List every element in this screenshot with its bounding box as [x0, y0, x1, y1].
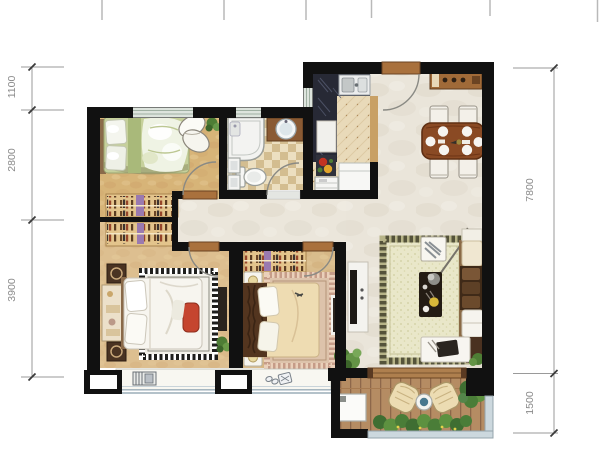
svg-text:3900: 3900 [6, 278, 18, 302]
svg-text:7800: 7800 [524, 178, 536, 202]
svg-text:2800: 2800 [6, 148, 18, 172]
svg-text:1500: 1500 [524, 391, 536, 415]
svg-text:1100: 1100 [6, 76, 18, 99]
